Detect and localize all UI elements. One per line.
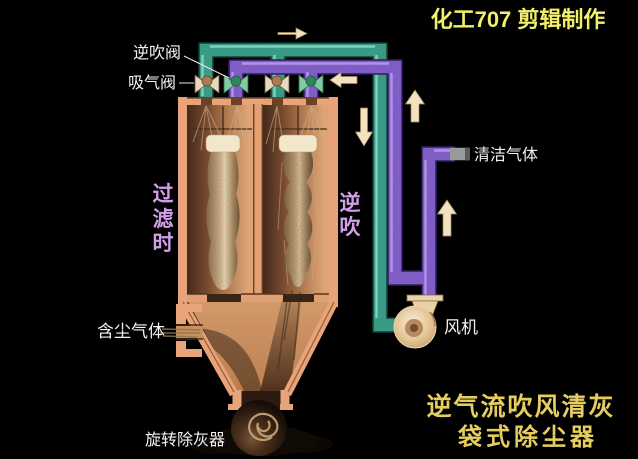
label-suction-valve: 吸气阀 [128,74,176,92]
svg-text:逆: 逆 [340,191,361,215]
svg-text:时: 时 [153,232,174,255]
watermark-title: 化工707 剪辑制作 [431,7,606,32]
bag-cap-right [279,135,317,152]
caption-line2: 袋式除尘器 [457,423,598,451]
fan-outlet-flange [407,295,443,301]
svg-text:过: 过 [153,182,174,206]
vessel-right-wall [329,97,338,307]
chamber-divider-wall [253,104,263,294]
svg-text:吹: 吹 [340,215,361,239]
bag-cap-left [206,135,240,152]
filter-bag-left [206,135,240,290]
label-clean-gas: 清洁气体 [474,146,538,164]
diagram-canvas: 化工707 剪辑制作 逆吹阀 吸气阀 清洁气体 含尘气体 风机 旋转除灰器 过 … [0,0,638,459]
vessel-left-wall [178,97,187,307]
label-reverse-blow-valve: 逆吹阀 [133,44,181,62]
label-filtering-mode: 过 滤 时 [153,182,174,255]
bag-filter-diagram: 化工707 剪辑制作 逆吹阀 吸气阀 清洁气体 含尘气体 风机 旋转除灰器 过 … [0,0,638,459]
label-fan: 风机 [444,318,478,337]
label-rotary-ash-remover: 旋转除灰器 [145,431,225,449]
label-dusty-gas: 含尘气体 [97,322,165,341]
chamber-floor [187,294,329,302]
caption-line1: 逆气流吹风清灰 [426,392,615,421]
svg-text:滤: 滤 [153,208,174,231]
